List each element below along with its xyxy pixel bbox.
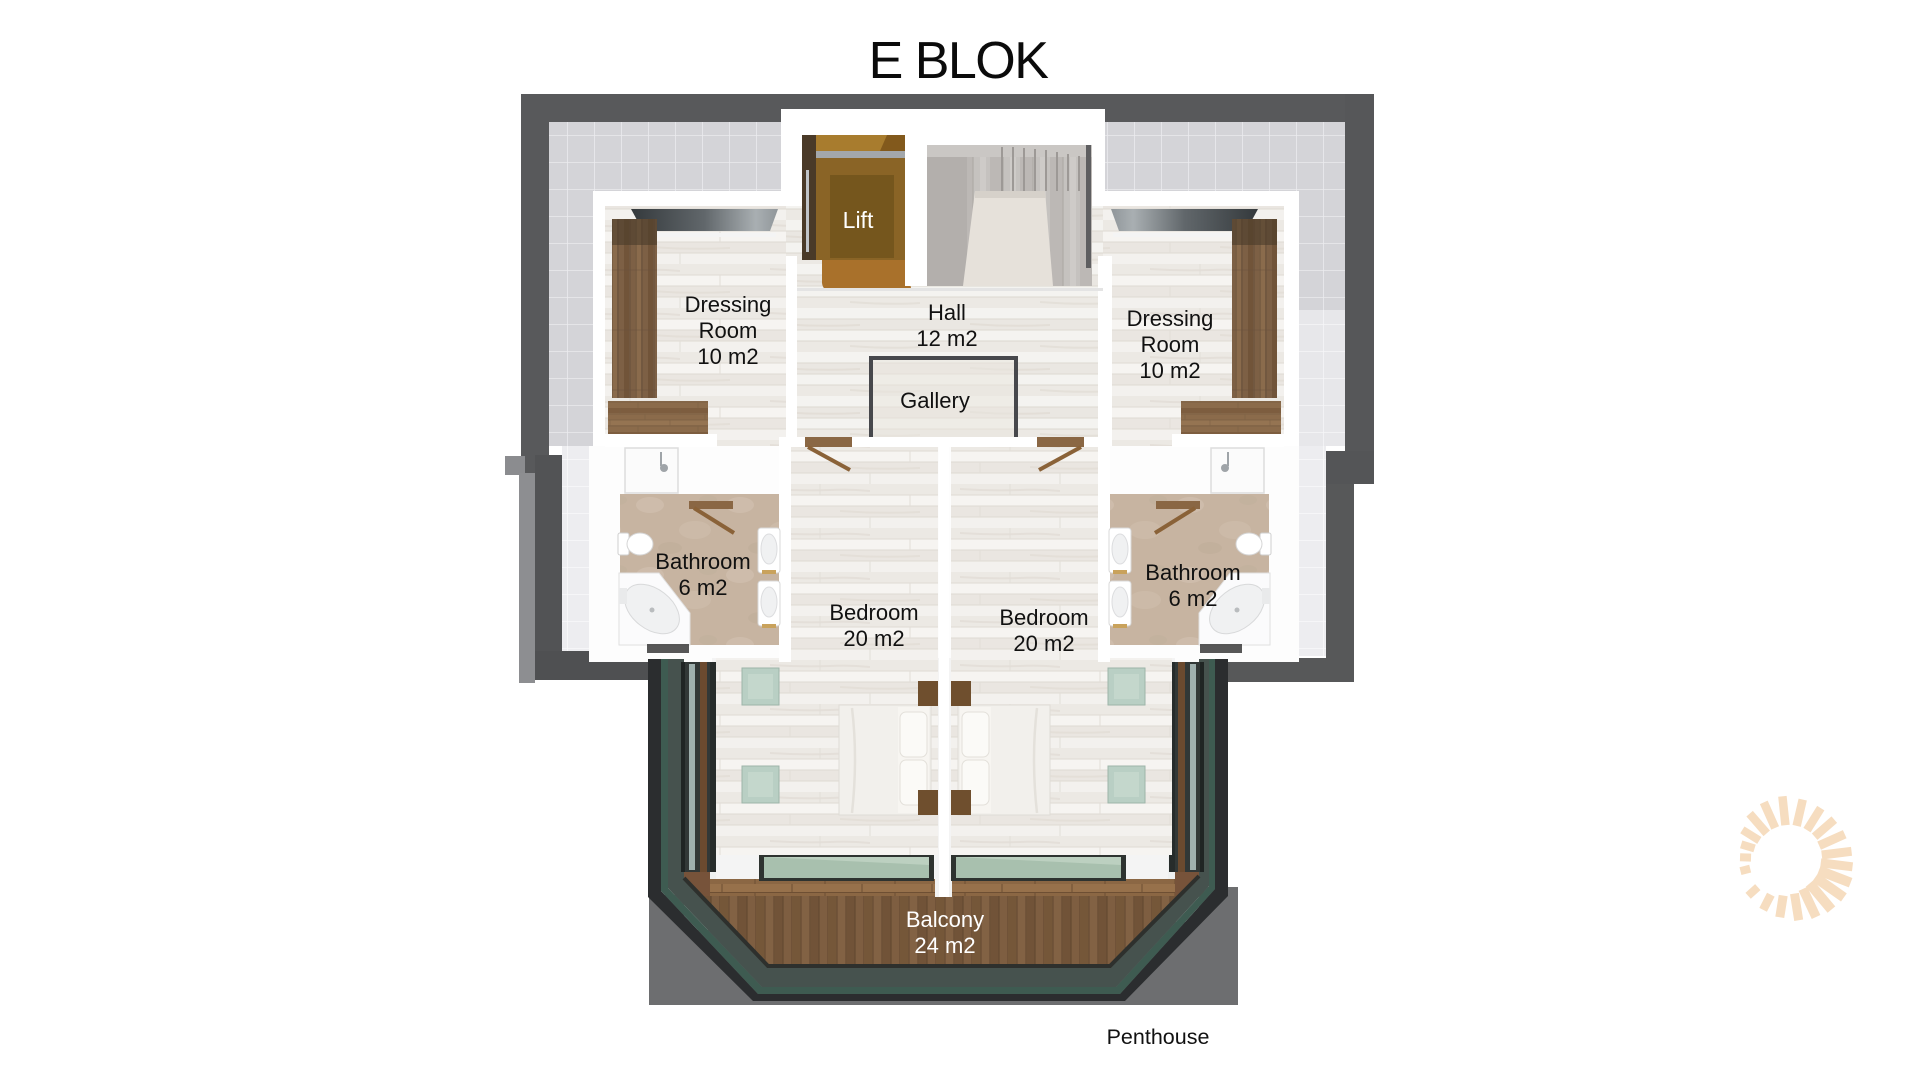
svg-text:24 m2: 24 m2 xyxy=(914,933,975,958)
svg-text:12 m2: 12 m2 xyxy=(916,326,977,351)
svg-text:Penthouse: Penthouse xyxy=(1107,1025,1210,1049)
svg-text:E BLOK: E BLOK xyxy=(869,32,1050,90)
svg-text:Dressing: Dressing xyxy=(1127,306,1214,331)
svg-text:Lift: Lift xyxy=(843,207,874,233)
svg-text:20 m2: 20 m2 xyxy=(843,626,904,651)
svg-text:Bedroom: Bedroom xyxy=(829,600,918,625)
svg-text:10 m2: 10 m2 xyxy=(697,344,758,369)
svg-text:Dressing: Dressing xyxy=(685,292,772,317)
svg-text:Gallery: Gallery xyxy=(900,388,970,413)
svg-text:6 m2: 6 m2 xyxy=(679,575,728,600)
svg-text:Bedroom: Bedroom xyxy=(999,605,1088,630)
svg-text:Room: Room xyxy=(1141,332,1200,357)
svg-text:20 m2: 20 m2 xyxy=(1013,631,1074,656)
svg-text:Bathroom: Bathroom xyxy=(1145,560,1240,585)
svg-text:6 m2: 6 m2 xyxy=(1169,586,1218,611)
svg-text:Room: Room xyxy=(699,318,758,343)
svg-text:Hall: Hall xyxy=(928,300,966,325)
svg-text:Bathroom: Bathroom xyxy=(655,549,750,574)
svg-text:Balcony: Balcony xyxy=(906,907,984,932)
svg-text:10 m2: 10 m2 xyxy=(1139,358,1200,383)
